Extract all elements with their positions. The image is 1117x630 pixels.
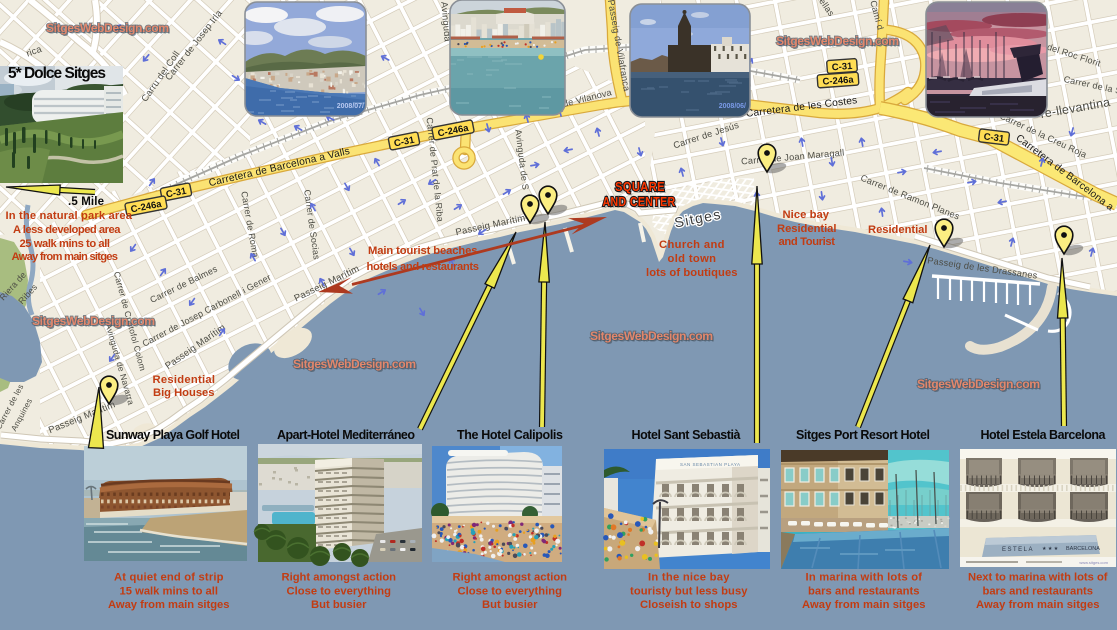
svg-text:Residential: Residential xyxy=(777,223,837,235)
svg-text:At quiet end of strip: At quiet end of strip xyxy=(114,572,224,584)
svg-text:old town: old town xyxy=(668,253,717,265)
svg-text:Hotel Estela Barcelona: Hotel Estela Barcelona xyxy=(981,428,1107,442)
svg-text:Right amongst action: Right amongst action xyxy=(453,572,568,584)
svg-text:But busier: But busier xyxy=(482,599,538,611)
svg-text:Big Houses: Big Houses xyxy=(153,387,215,399)
svg-text:Away from main sitges: Away from main sitges xyxy=(976,599,1100,611)
svg-text:Residential: Residential xyxy=(868,224,928,236)
svg-text:A less developed area: A less developed area xyxy=(13,224,121,236)
svg-text:Residential: Residential xyxy=(153,374,216,386)
svg-text:Close to everything: Close to everything xyxy=(458,585,563,597)
svg-text:www.sitges.com: www.sitges.com xyxy=(1079,560,1108,565)
svg-text:2008/07/: 2008/07/ xyxy=(337,103,364,110)
svg-text:Away from main sitges: Away from main sitges xyxy=(108,599,230,611)
svg-text:SQUARE: SQUARE xyxy=(615,179,665,194)
svg-text:5* Dolce Sitges: 5* Dolce Sitges xyxy=(8,65,106,82)
svg-text:But busier: But busier xyxy=(311,599,367,611)
svg-text:Next to marina with lots of: Next to marina with lots of xyxy=(968,572,1108,584)
svg-text:SitgesWebDesign.com: SitgesWebDesign.com xyxy=(590,329,713,343)
svg-text:Away from main sitges: Away from main sitges xyxy=(12,251,119,263)
svg-text:bars and restaurants: bars and restaurants xyxy=(808,585,920,597)
svg-text:touristy but less busy: touristy but less busy xyxy=(630,585,748,597)
svg-text:Main tourist beaches: Main tourist beaches xyxy=(368,245,478,257)
svg-text:.5 Mile: .5 Mile xyxy=(68,196,104,208)
svg-text:SitgesWebDesign.com: SitgesWebDesign.com xyxy=(46,21,169,35)
svg-text:Nice bay: Nice bay xyxy=(783,209,830,221)
svg-text:bars and restaurants: bars and restaurants xyxy=(983,585,1094,597)
svg-text:Right amongst action: Right amongst action xyxy=(282,572,397,584)
svg-text:SitgesWebDesign.com: SitgesWebDesign.com xyxy=(32,314,155,328)
svg-text:Church and: Church and xyxy=(659,239,725,251)
svg-text:25 walk mins to all: 25 walk mins to all xyxy=(20,238,111,250)
svg-text:Sitges Port Resort Hotel: Sitges Port Resort Hotel xyxy=(796,428,930,442)
svg-text:SAN SEBASTIAN PLAYA: SAN SEBASTIAN PLAYA xyxy=(680,462,740,467)
svg-text:The Hotel Calipolis: The Hotel Calipolis xyxy=(457,428,563,442)
svg-text:★ ★ ★: ★ ★ ★ xyxy=(1042,546,1059,552)
svg-text:lots of boutiques: lots of boutiques xyxy=(646,267,738,279)
svg-text:SitgesWebDesign.com: SitgesWebDesign.com xyxy=(776,34,899,48)
svg-text:SitgesWebDesign.com: SitgesWebDesign.com xyxy=(293,357,416,371)
svg-text:Close to everything: Close to everything xyxy=(287,585,392,597)
svg-text:In the natural park area: In the natural park area xyxy=(6,210,133,222)
svg-text:Closeish to shops: Closeish to shops xyxy=(640,599,738,611)
svg-text:In the nice bay: In the nice bay xyxy=(648,572,730,584)
svg-text:and Tourist: and Tourist xyxy=(779,236,836,248)
svg-text:Apart-Hotel Mediterráneo: Apart-Hotel Mediterráneo xyxy=(277,428,415,442)
svg-text:BARCELONA: BARCELONA xyxy=(1066,546,1100,552)
svg-text:In marina with lots of: In marina with lots of xyxy=(806,572,923,584)
svg-text:15 walk mins to all: 15 walk mins to all xyxy=(120,585,219,597)
svg-text:SitgesWebDesign.com: SitgesWebDesign.com xyxy=(917,377,1040,391)
svg-text:C-246a: C-246a xyxy=(822,74,855,87)
svg-text:AND CENTER: AND CENTER xyxy=(603,194,676,209)
svg-text:Away from main sitges: Away from main sitges xyxy=(802,599,926,611)
svg-text:Sunway Playa Golf Hotel: Sunway Playa Golf Hotel xyxy=(106,428,240,442)
svg-text:C-31: C-31 xyxy=(831,61,853,73)
svg-text:hotels and restaurants: hotels and restaurants xyxy=(367,261,480,273)
svg-text:2008/06/: 2008/06/ xyxy=(719,103,746,110)
svg-text:ESTELA: ESTELA xyxy=(1002,547,1034,553)
svg-text:Hotel Sant Sebastià: Hotel Sant Sebastià xyxy=(632,428,741,442)
